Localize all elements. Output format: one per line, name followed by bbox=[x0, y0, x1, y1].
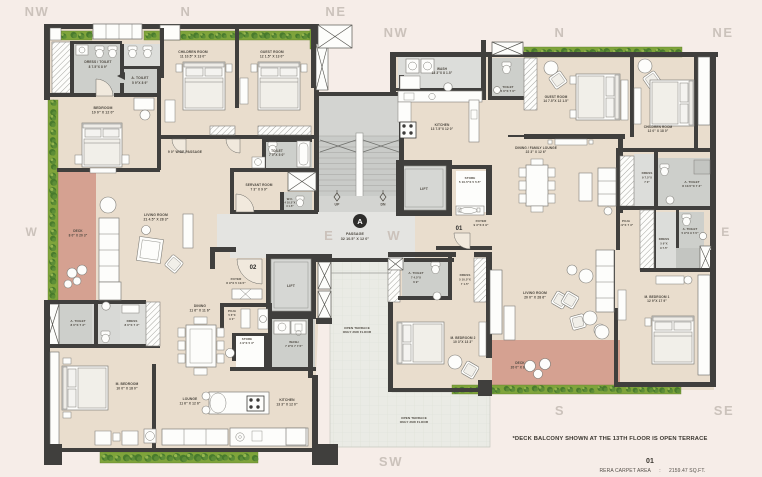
svg-text:RERA CARPET AREA: RERA CARPET AREA bbox=[599, 468, 651, 474]
svg-text:11 10.5" X 13 0": 11 10.5" X 13 0" bbox=[180, 54, 206, 58]
svg-text:ONLY 2ND FLOOR: ONLY 2ND FLOOR bbox=[400, 420, 429, 424]
svg-text:21 4.5" X 28 3": 21 4.5" X 28 3" bbox=[144, 218, 169, 222]
svg-text:4 10.5"X: 4 10.5"X bbox=[285, 201, 296, 205]
svg-text:9 7.5"X: 9 7.5"X bbox=[642, 176, 652, 180]
svg-text:2159.47 SQ.FT.: 2159.47 SQ.FT. bbox=[669, 468, 705, 474]
svg-text:7 9"X 7 7.5": 7 9"X 7 7.5" bbox=[285, 344, 303, 348]
svg-text:A: A bbox=[357, 217, 363, 226]
svg-text:7 0": 7 0" bbox=[644, 180, 650, 184]
svg-text:W: W bbox=[387, 228, 400, 243]
svg-text:UP: UP bbox=[335, 203, 341, 207]
svg-text:DRESS: DRESS bbox=[642, 171, 653, 175]
svg-text:DINING: DINING bbox=[194, 304, 206, 308]
svg-text:BEDROOM: BEDROOM bbox=[94, 106, 113, 110]
svg-text:14 7.5"X 12 1.5": 14 7.5"X 12 1.5" bbox=[543, 99, 569, 103]
svg-text:11 6" X 12 6": 11 6" X 12 6" bbox=[179, 401, 200, 405]
svg-text:5 10.5"X: 5 10.5"X bbox=[459, 277, 471, 281]
svg-text:32 10.5" X 12 0": 32 10.5" X 12 0" bbox=[341, 237, 370, 241]
svg-text:LIVING ROOM: LIVING ROOM bbox=[144, 213, 168, 217]
svg-text:LIVING ROOM: LIVING ROOM bbox=[523, 291, 547, 295]
svg-text:S: S bbox=[555, 403, 565, 418]
svg-text:NE: NE bbox=[712, 25, 733, 40]
svg-text:9 7.5": 9 7.5" bbox=[660, 246, 668, 250]
svg-text:PASSAGE: PASSAGE bbox=[346, 232, 365, 236]
svg-text:7 0"X 5 0": 7 0"X 5 0" bbox=[269, 153, 285, 157]
svg-text:6 9": 6 9" bbox=[413, 280, 419, 284]
svg-text:NW: NW bbox=[384, 25, 409, 40]
svg-text:ONLY 2ND FLOOR: ONLY 2ND FLOOR bbox=[343, 330, 372, 334]
svg-text:DRESS: DRESS bbox=[460, 273, 471, 277]
svg-text:20 0" X 28 6": 20 0" X 28 6" bbox=[524, 296, 546, 300]
svg-text:PUJA: PUJA bbox=[228, 309, 237, 313]
svg-text:7 1.5": 7 1.5" bbox=[461, 282, 470, 286]
svg-text:8 0" X 20 3": 8 0" X 20 3" bbox=[69, 233, 88, 237]
svg-text:8 0"X 7 3": 8 0"X 7 3" bbox=[124, 323, 139, 327]
svg-text:LOUNGE: LOUNGE bbox=[183, 397, 198, 401]
svg-text:N: N bbox=[181, 4, 192, 19]
svg-text:4 9"X 7 3": 4 9"X 7 3" bbox=[619, 223, 634, 227]
svg-text:9 0" WIDE PASSAGE: 9 0" WIDE PASSAGE bbox=[168, 150, 203, 154]
svg-text:01: 01 bbox=[456, 226, 463, 232]
svg-text:E: E bbox=[324, 228, 334, 243]
svg-text:DRESS: DRESS bbox=[659, 237, 669, 241]
svg-text:5 10.5"X 5 5.5": 5 10.5"X 5 5.5" bbox=[459, 180, 482, 184]
svg-text:LIFT: LIFT bbox=[420, 187, 429, 191]
svg-text:9 0": 9 0" bbox=[229, 317, 235, 321]
svg-text:8 7.5"X 8 9": 8 7.5"X 8 9" bbox=[89, 65, 108, 69]
svg-text:NW: NW bbox=[25, 4, 50, 19]
svg-text:5 9"X 9 7.5": 5 9"X 9 7.5" bbox=[681, 231, 699, 235]
svg-text:13 3" X 12 0": 13 3" X 12 0" bbox=[276, 402, 298, 406]
svg-text:10 3"X 13 3": 10 3"X 13 3" bbox=[453, 340, 473, 344]
svg-text:8 9"X 5 10.5": 8 9"X 5 10.5" bbox=[226, 281, 246, 285]
svg-text:7 4.5"X: 7 4.5"X bbox=[411, 275, 421, 279]
svg-text:CHILDREN ROOM: CHILDREN ROOM bbox=[178, 50, 208, 54]
svg-text:SE: SE bbox=[714, 403, 735, 418]
svg-text:12 9"X 17 9": 12 9"X 17 9" bbox=[647, 299, 667, 303]
svg-text:01: 01 bbox=[646, 458, 654, 465]
svg-text:M. BEDROOM: M. BEDROOM bbox=[116, 382, 139, 386]
svg-text:9 3"X 6 9": 9 3"X 6 9" bbox=[473, 223, 488, 227]
svg-text:11 6" X 11 6": 11 6" X 11 6" bbox=[190, 308, 211, 312]
svg-text::: : bbox=[659, 468, 661, 474]
svg-text:NE: NE bbox=[325, 4, 346, 19]
svg-text:DN: DN bbox=[380, 203, 386, 207]
svg-text:W: W bbox=[26, 225, 39, 239]
svg-text:22 3" X 12 6": 22 3" X 12 6" bbox=[526, 150, 547, 154]
svg-text:5 6"X: 5 6"X bbox=[228, 313, 235, 317]
svg-text:12 0" X 18 0": 12 0" X 18 0" bbox=[648, 129, 669, 133]
svg-text:A. TOILET: A. TOILET bbox=[131, 76, 149, 80]
svg-text:N: N bbox=[555, 25, 566, 40]
svg-text:5 9"X 8 9": 5 9"X 8 9" bbox=[132, 81, 148, 85]
svg-text:SW: SW bbox=[379, 454, 403, 469]
svg-text:10 0" X 18 0": 10 0" X 18 0" bbox=[116, 386, 138, 390]
svg-text:W.C.: W.C. bbox=[287, 197, 294, 201]
svg-text:KITCHEN: KITCHEN bbox=[279, 398, 295, 402]
svg-text:13 7.5"X 12 0": 13 7.5"X 12 0" bbox=[431, 127, 454, 131]
svg-text:02: 02 bbox=[250, 265, 257, 271]
svg-text:13 3"X 8 1.5": 13 3"X 8 1.5" bbox=[432, 71, 453, 75]
svg-text:A. TOILET: A. TOILET bbox=[408, 271, 423, 275]
svg-text:LIFT: LIFT bbox=[287, 284, 296, 288]
svg-text:*DECK BALCONY SHOWN AT THE 13T: *DECK BALCONY SHOWN AT THE 13TH FLOOR IS… bbox=[513, 436, 708, 442]
svg-text:5 9"X: 5 9"X bbox=[660, 241, 667, 245]
svg-text:8 0"X 7 3": 8 0"X 7 3" bbox=[70, 323, 85, 327]
svg-text:E: E bbox=[721, 225, 731, 239]
svg-text:DECK: DECK bbox=[73, 229, 83, 233]
svg-text:DRESS / TOILET: DRESS / TOILET bbox=[84, 60, 111, 64]
svg-text:GUEST ROOM: GUEST ROOM bbox=[260, 50, 284, 54]
svg-text:12 1.5" X 13 0": 12 1.5" X 13 0" bbox=[260, 54, 285, 58]
svg-text:8 10.5"X 7 3": 8 10.5"X 7 3" bbox=[682, 184, 702, 188]
svg-text:SERVANT ROOM: SERVANT ROOM bbox=[246, 183, 273, 187]
svg-text:4 9"X 5 3": 4 9"X 5 3" bbox=[240, 341, 255, 345]
svg-text:5 0"X 7 0": 5 0"X 7 0" bbox=[500, 89, 515, 93]
svg-text:10 0" X 12 0": 10 0" X 12 0" bbox=[92, 111, 115, 115]
svg-text:3 1.5": 3 1.5" bbox=[286, 204, 294, 208]
svg-text:7 3" X 9 9": 7 3" X 9 9" bbox=[251, 187, 268, 191]
